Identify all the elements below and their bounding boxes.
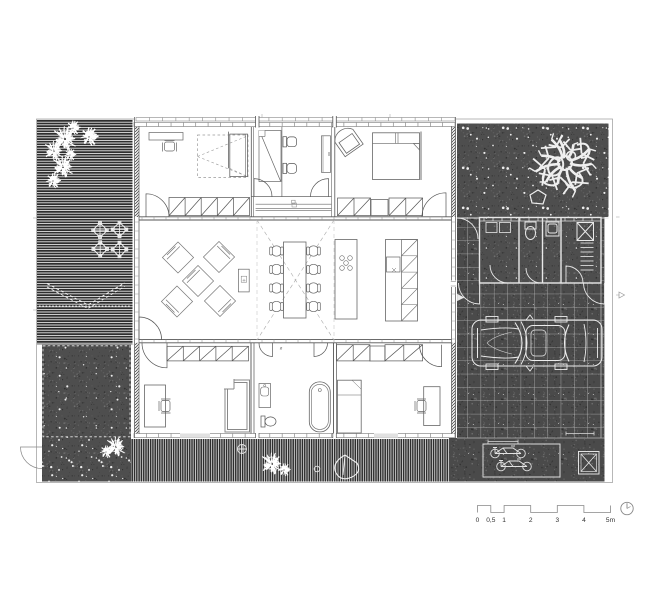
svg-text:3: 3 [555,517,559,524]
svg-text:5m: 5m [606,517,616,524]
svg-text:ø: ø [280,346,283,351]
svg-text:4: 4 [582,517,586,524]
svg-text:2: 2 [529,517,533,524]
svg-text:0: 0 [476,517,480,524]
svg-text:1: 1 [502,517,506,524]
svg-text:0,5: 0,5 [486,517,495,524]
